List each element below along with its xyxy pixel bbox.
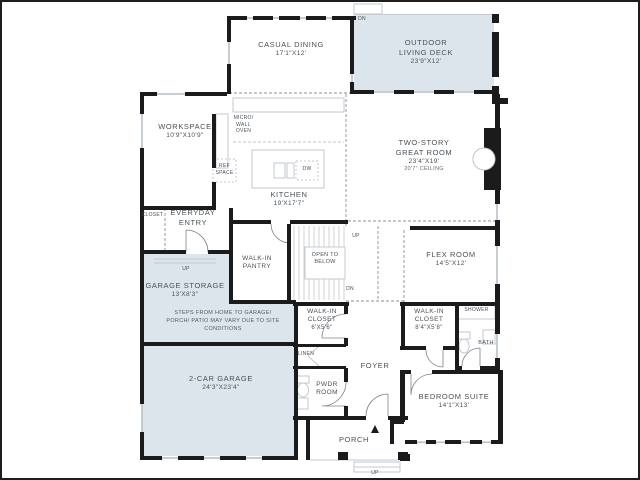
wall (470, 440, 482, 444)
bath-toilet-tank (458, 332, 470, 339)
wall (400, 370, 405, 422)
fixture-label-micro-wall-oven: MICRO/ WALL OVEN (230, 115, 257, 135)
wall (401, 302, 405, 350)
window (414, 91, 434, 93)
porch-step (354, 462, 400, 467)
room-label-porch: PORCH (332, 435, 376, 445)
wall (400, 454, 410, 461)
wall (262, 456, 298, 460)
room-label-bath: BATH (472, 340, 500, 347)
room-label-garage-storage: GARAGE STORAGE 13'X8'3" (140, 281, 230, 299)
fixture-label-ref-space: REF SPACE (213, 163, 236, 176)
window (228, 42, 230, 64)
wall (293, 416, 348, 420)
wall (426, 440, 436, 444)
wall (455, 366, 462, 370)
wall (348, 416, 366, 420)
window (436, 442, 445, 444)
room-label-foyer: FOYER (352, 361, 398, 371)
window (273, 17, 279, 19)
marker-deck-dn: DN (354, 16, 370, 23)
wall (400, 302, 500, 306)
wall (229, 300, 296, 304)
wall (279, 16, 300, 20)
wall (394, 90, 414, 94)
room-label-flex-room: FLEX ROOM 14'5"X12' (414, 250, 488, 268)
window (141, 404, 143, 432)
wall (294, 302, 298, 344)
room-label-pwdr-room: PWDR ROOM (310, 381, 344, 398)
wall (140, 344, 144, 404)
garage-door-line (204, 457, 220, 459)
storage-door-arc (186, 230, 208, 252)
room-label-kitchen: KITCHEN 19'X17'7" (254, 190, 324, 208)
window (496, 204, 498, 220)
wall (350, 82, 354, 94)
floor-plan-linework (2, 2, 640, 480)
wall (293, 366, 346, 369)
room-label-everyday-entry: EVERYDAY ENTRY (160, 208, 226, 228)
window (461, 442, 470, 444)
room-label-walk-in-closet-a: WALK-IN CLOSET 6'X5'6" (299, 308, 345, 333)
wall (495, 302, 500, 334)
room-label-walk-in-closet-b: WALK-IN CLOSET 8'4"X5'8" (406, 308, 452, 333)
marker-stairs-dn: DN (342, 286, 358, 293)
wall (495, 190, 500, 204)
kitchen-counter (233, 98, 344, 112)
window (482, 442, 491, 444)
wall (306, 420, 310, 460)
marker-porch-up: UP (367, 470, 383, 477)
wall (480, 366, 500, 370)
wall (344, 368, 348, 382)
wall (140, 456, 162, 460)
wall (140, 148, 144, 252)
sink-box (274, 163, 285, 178)
pwdr-toilet-tank (297, 376, 309, 383)
bath-door-arc (462, 348, 480, 366)
window (417, 442, 426, 444)
wall (432, 370, 500, 374)
wall (491, 440, 500, 444)
wall (212, 182, 216, 208)
wall (294, 344, 298, 458)
window (141, 114, 143, 148)
room-label-walk-in-pantry: WALK-IN PANTRY (235, 255, 279, 272)
window (374, 91, 394, 93)
wall (390, 420, 404, 424)
wall (474, 90, 494, 94)
wall (140, 342, 298, 346)
closet-b-door-arc (426, 350, 443, 367)
wall (220, 456, 246, 460)
sink-box-2 (287, 163, 294, 178)
wall (227, 16, 231, 42)
wall (293, 344, 346, 347)
wall (231, 220, 271, 224)
wall (253, 16, 273, 20)
garage-note: STEPS FROM HOME TO GARAGE/ PORCH/ PATIO … (164, 310, 282, 334)
wall (434, 90, 454, 94)
marker-storage-up: UP (178, 266, 194, 273)
wall (140, 92, 144, 114)
wall (410, 226, 500, 230)
window (300, 17, 306, 19)
floor-plan: CASUAL DINING 17'1"X12' OUTDOOR LIVING D… (0, 0, 640, 480)
wall (492, 32, 499, 77)
marker-stairs-up: UP (348, 233, 364, 240)
wall (185, 92, 227, 96)
garage-door-line (162, 457, 178, 459)
window (496, 246, 498, 284)
room-label-shower: SHOWER (460, 307, 493, 314)
entry-arrow (371, 425, 379, 433)
wall (445, 440, 461, 444)
wall (227, 64, 231, 94)
wall (492, 14, 499, 23)
room-label-bedroom-suite: BEDROOM SUITE 14'1"X13' (408, 392, 500, 410)
room-label-casual-dining: CASUAL DINING 17'1"X12' (252, 40, 330, 58)
deck-stair-landing (354, 4, 382, 14)
wall (140, 432, 144, 460)
pwdr-sink (297, 398, 308, 409)
wall (443, 346, 457, 350)
wall (405, 370, 411, 374)
wall (287, 224, 291, 304)
wall (405, 440, 417, 444)
pwdr-toilet (298, 383, 309, 397)
wall (140, 250, 186, 254)
wall (293, 302, 349, 306)
window (326, 17, 332, 19)
wall (350, 16, 354, 74)
fixture-label-dishwasher: DW (296, 166, 318, 173)
porch-post (338, 452, 348, 460)
window (351, 74, 353, 82)
room-label-closet: CLOSET (139, 212, 166, 219)
wall (495, 94, 500, 128)
room-label-two-car-garage: 2-CAR GARAGE 24'3"X23'4" (178, 374, 264, 392)
window (157, 93, 185, 95)
front-door-arc (366, 394, 388, 416)
wall (400, 346, 426, 350)
wall (455, 302, 459, 370)
wall (290, 220, 348, 224)
bath-toilet (459, 339, 469, 353)
room-label-workspace: WORKSPACE 10'9"X10'9" (148, 122, 222, 140)
wall (354, 90, 374, 94)
wall (495, 284, 500, 304)
wall (178, 456, 204, 460)
window (454, 91, 474, 93)
wall (306, 16, 326, 20)
room-label-outdoor-deck: OUTDOOR LIVING DECK 23'9"X12' (394, 38, 458, 66)
wall (495, 230, 500, 246)
label-open-to-below: OPEN TO BELOW (307, 252, 343, 266)
window (247, 17, 253, 19)
fireplace-niche (473, 148, 495, 170)
room-label-linen: LINEN (295, 351, 317, 358)
garage-door-line (246, 457, 262, 459)
wall (390, 424, 394, 444)
room-label-great-room: TWO-STORY GREAT ROOM 23'4"X19' 20'7" CEI… (388, 138, 460, 173)
